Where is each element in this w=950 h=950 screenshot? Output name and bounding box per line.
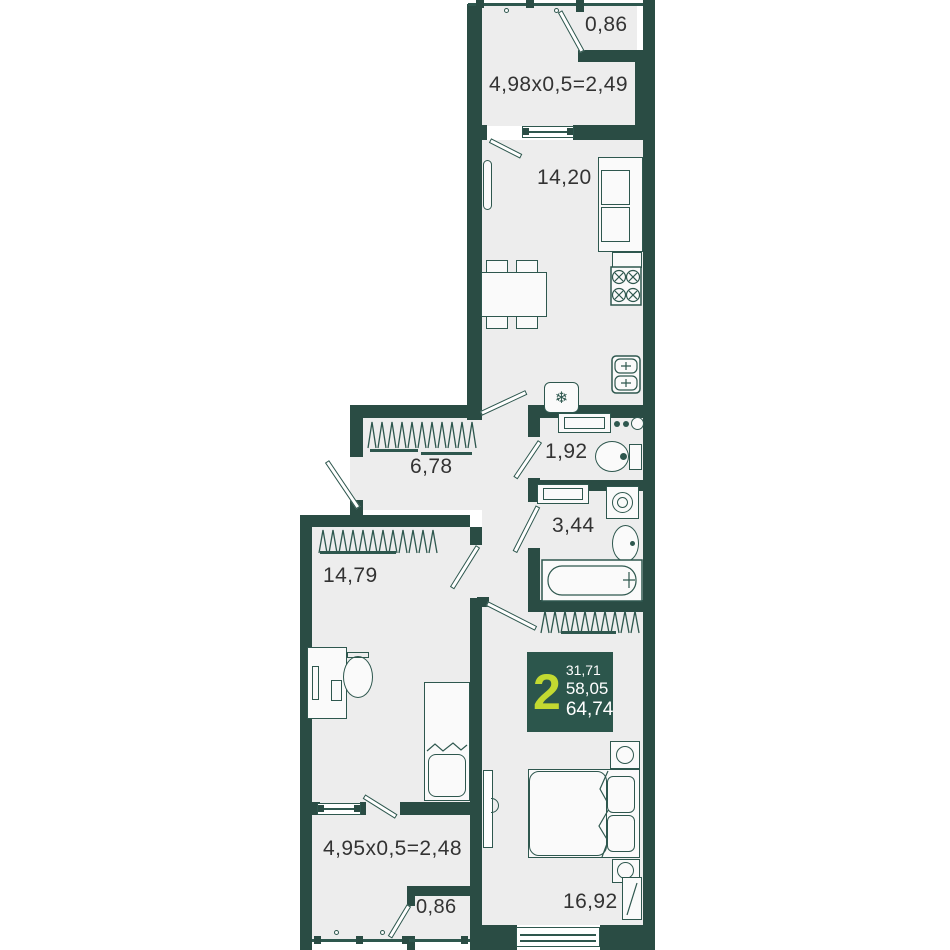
glazing-bottom-line (312, 939, 470, 942)
wall-bedroom1-top (300, 515, 470, 527)
window-bedroom1-end-l (318, 805, 324, 812)
dining-table (481, 272, 547, 317)
usable-area-value: 58,05 (566, 679, 614, 699)
window-living-balcony-end-l (523, 128, 529, 135)
wall-shared-a (470, 527, 482, 545)
glazing-bottom-dot-2 (380, 930, 385, 935)
floor-plan: ❄ (0, 0, 950, 950)
chair-4 (516, 316, 538, 329)
window-living-balcony-end-r (567, 128, 573, 135)
wall-left-top (467, 4, 482, 420)
wc-faucet-dot-1 (614, 421, 620, 427)
total-area-value: 64,74 (566, 699, 614, 722)
label-balcony-top-storage: 0,86 (585, 13, 627, 37)
wall-divider-right (573, 125, 643, 140)
wall-storage2-top (408, 886, 470, 896)
glazing-top-mullion-1 (476, 0, 484, 8)
toilet-flush-dot (620, 453, 627, 460)
label-balcony-bottom-storage: 0,86 (416, 896, 457, 919)
wall-storage2-left-a (407, 886, 415, 906)
floor-balcony-bottom (312, 815, 470, 940)
wall-balcony-right-extra (635, 58, 643, 128)
glazing-top-mullion-3 (576, 0, 584, 8)
wall-divider-left-stub (467, 125, 487, 140)
chair-2 (516, 260, 538, 273)
window-bedroom2-line2 (520, 940, 596, 942)
nightstand-1-lamp (616, 746, 634, 764)
glazing-top-mullion-2 (526, 0, 534, 8)
glazing-top-dot-1 (504, 8, 509, 13)
window-bedroom1 (317, 803, 361, 815)
window-bedroom2-line1 (520, 934, 596, 936)
tv-panel (483, 160, 492, 210)
rooms-count: 2 (533, 667, 561, 717)
washing-machine-door-inner (617, 497, 628, 508)
toilet-tank (629, 444, 642, 470)
glazing-bottom-mullion-2 (356, 936, 363, 944)
office-chair (343, 656, 373, 698)
living-area-value: 31,71 (566, 662, 614, 679)
window-living-balcony (522, 126, 574, 138)
apartment-area-badge: 2 31,71 58,05 64,74 (527, 652, 613, 732)
wall-right-outer (643, 0, 655, 950)
glazing-bottom-mullion-1 (314, 936, 321, 944)
sofa-cushion-2 (601, 207, 630, 242)
bath-sink-drain (630, 541, 635, 546)
label-hallway: 6,78 (410, 455, 452, 479)
label-bedroom1: 14,79 (323, 564, 378, 588)
bed1-blanket-fold (425, 740, 469, 754)
glazing-top-line (468, 3, 643, 6)
bedroom1-closet-shelf (320, 551, 396, 554)
wall-b2-bottom-a (470, 925, 517, 950)
label-balcony-top: 4,98x0,5=2,49 (489, 73, 628, 97)
bedroom2-closet-shelf (561, 631, 616, 634)
label-kitchen-living: 14,20 (537, 166, 592, 190)
wall-b1-bottom-c (400, 802, 470, 815)
glazing-bottom-mullion-3 (402, 936, 409, 944)
bath-shelf-inner (543, 488, 583, 500)
kitchen-sink-icon (611, 355, 641, 394)
glazing-bottom-dot-1 (334, 930, 339, 935)
bed1-mattress (428, 754, 466, 797)
sofa-cushion-1 (601, 170, 630, 205)
bed2-pillow-1 (607, 776, 635, 813)
label-bedroom2: 16,92 (563, 890, 618, 914)
window-bedroom1-midline (320, 808, 358, 810)
wall-hallway-top (350, 405, 480, 418)
hallway-closet-shelf-1 (370, 449, 418, 452)
mirror-glass-line (622, 877, 642, 920)
desk-monitor (312, 666, 319, 700)
desk-keyboard (331, 680, 342, 701)
fridge-snowflake-icon: ❄ (555, 388, 568, 408)
window-living-balcony-midline (525, 131, 571, 133)
bathtub-icon (541, 559, 643, 602)
bed2-pillow-2 (607, 815, 635, 852)
wall-shared-b (470, 598, 482, 950)
glazing-bottom-mullion-4 (461, 936, 468, 944)
label-wc: 1,92 (545, 440, 587, 464)
chair-3 (486, 316, 508, 329)
label-bathroom: 3,44 (552, 514, 594, 538)
stove-icon (610, 266, 642, 306)
wall-b2-bottom-b (600, 925, 655, 950)
office-chair-back (347, 652, 369, 658)
wall-left-main (300, 515, 312, 950)
wall-storage-top-bottom (578, 50, 643, 62)
window-bedroom1-end-r (354, 805, 360, 812)
wall-hallway-left-a (350, 405, 363, 457)
wall-bath-left-a (528, 405, 540, 437)
floor-corridor (482, 508, 528, 602)
fridge: ❄ (544, 382, 579, 413)
chair-1 (486, 260, 508, 273)
wc-shelf-inner (564, 417, 605, 429)
wc-faucet-ring (631, 417, 644, 430)
label-balcony-bottom: 4,95x0,5=2,48 (323, 837, 462, 861)
hallway-closet-hatch (365, 419, 477, 451)
wc-faucet-dot-2 (623, 421, 629, 427)
window-bedroom2 (516, 927, 600, 947)
